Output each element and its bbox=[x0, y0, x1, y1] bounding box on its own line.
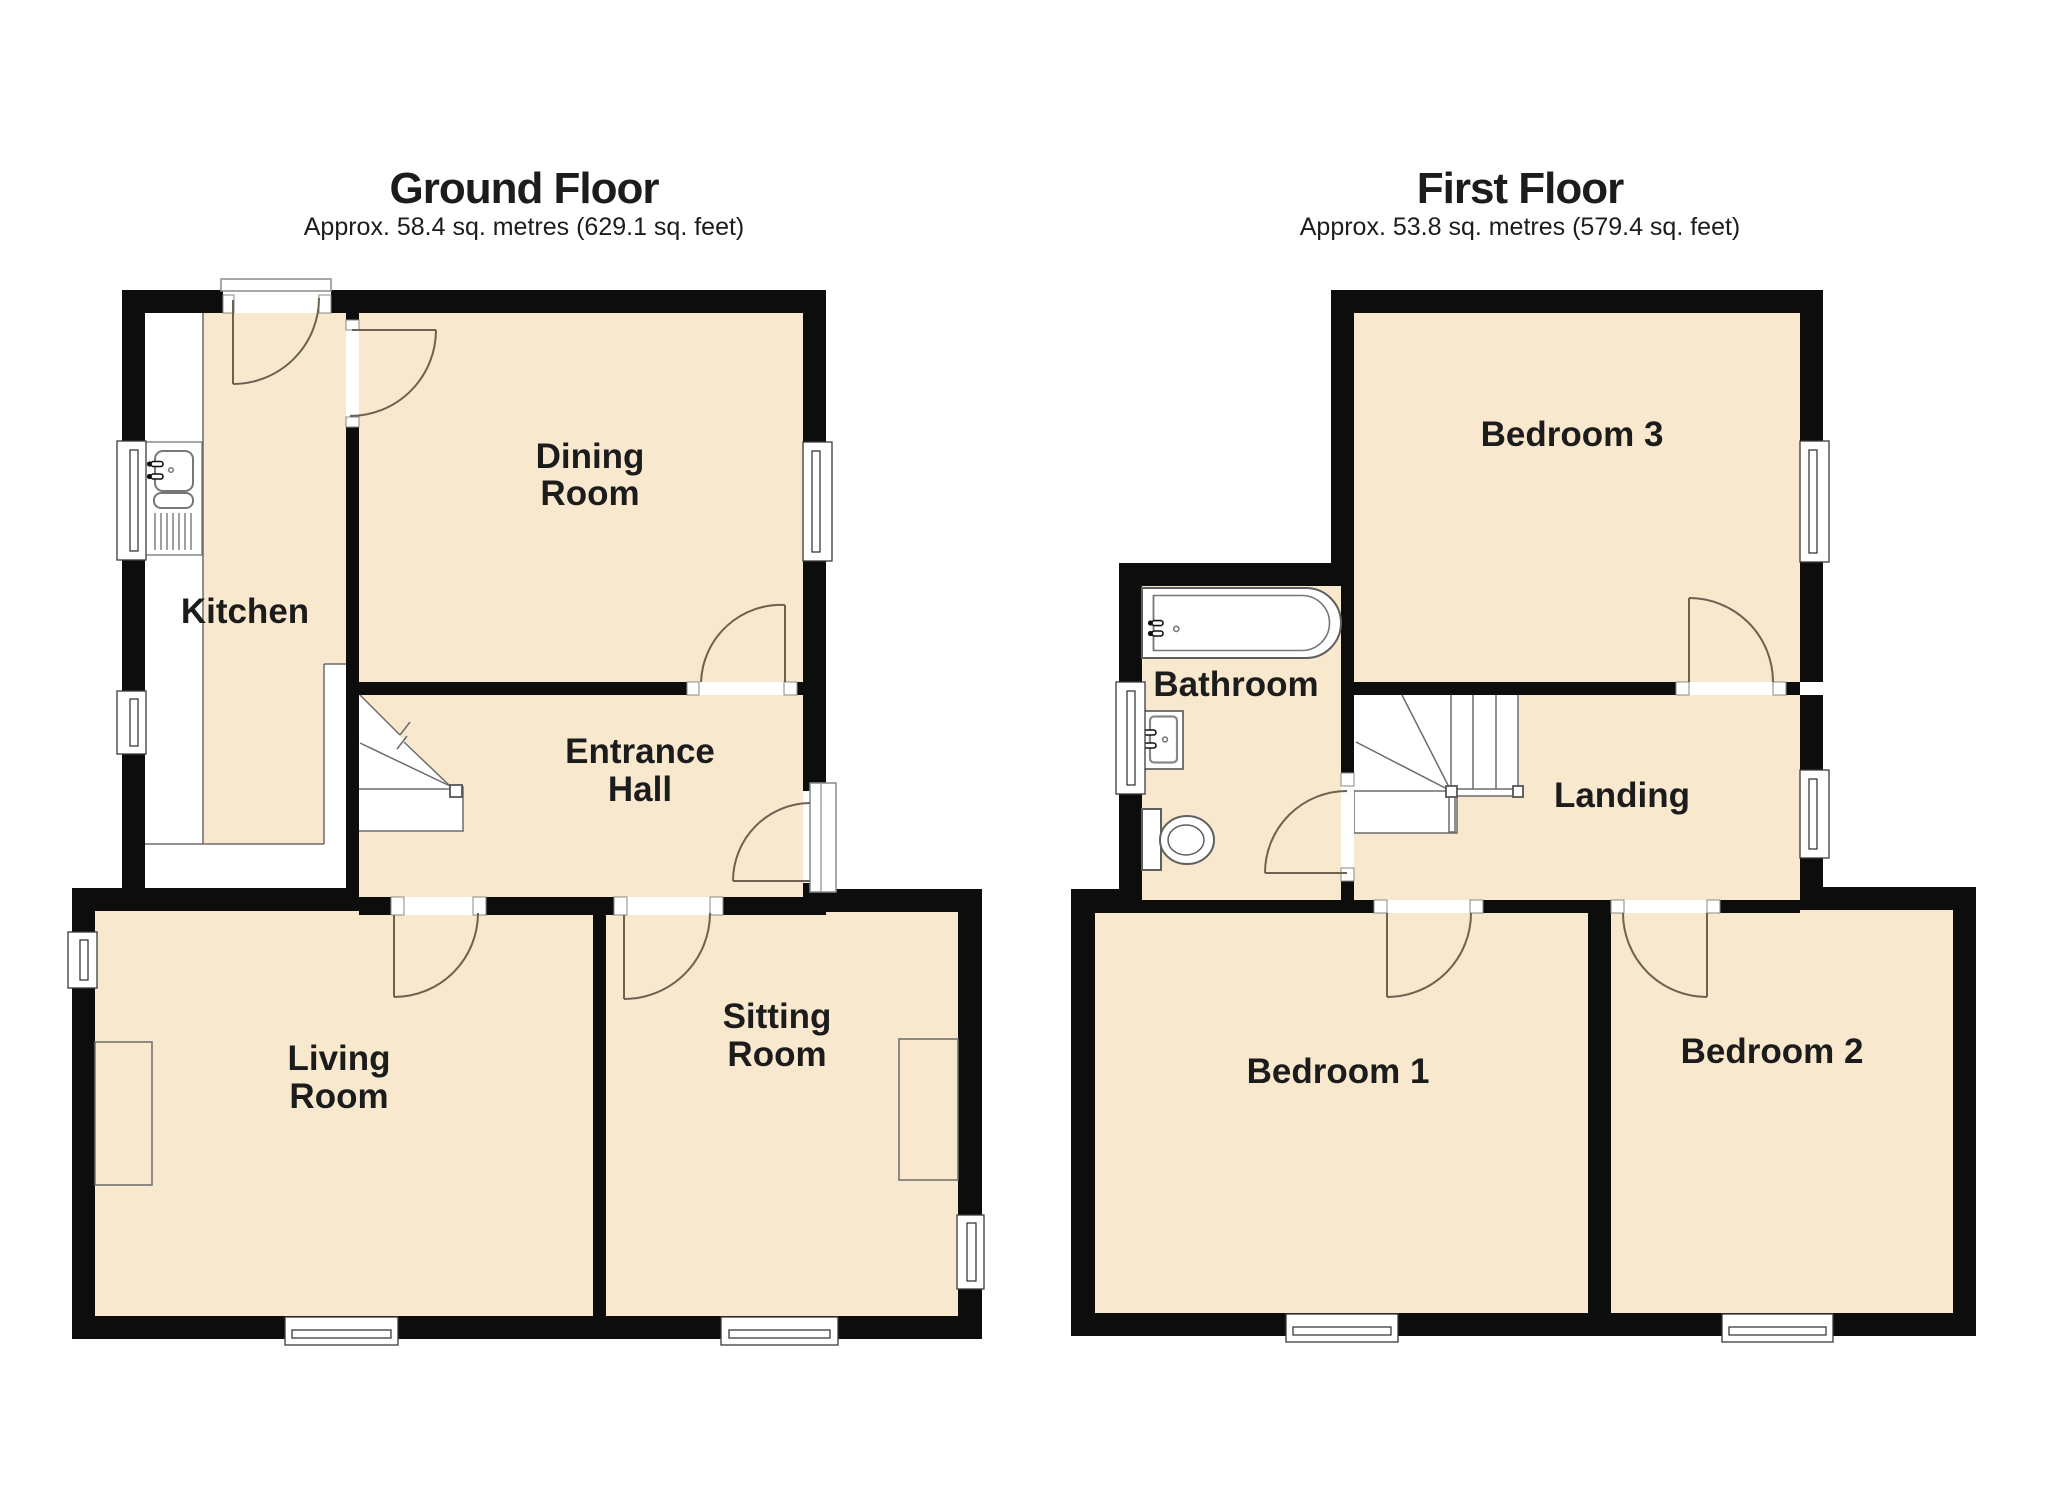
svg-text:Bedroom 2: Bedroom 2 bbox=[1681, 1032, 1864, 1071]
svg-text:Sitting: Sitting bbox=[723, 997, 832, 1036]
svg-text:Approx. 58.4 sq. metres (629.1: Approx. 58.4 sq. metres (629.1 sq. feet) bbox=[304, 213, 745, 241]
svg-text:Room: Room bbox=[727, 1035, 826, 1074]
svg-text:Living: Living bbox=[287, 1039, 390, 1078]
svg-text:Hall: Hall bbox=[608, 770, 672, 809]
svg-text:First Floor: First Floor bbox=[1417, 164, 1624, 213]
svg-text:Landing: Landing bbox=[1554, 776, 1690, 815]
svg-text:Approx. 53.8 sq. metres (579.4: Approx. 53.8 sq. metres (579.4 sq. feet) bbox=[1300, 213, 1741, 241]
svg-text:Bathroom: Bathroom bbox=[1153, 665, 1318, 704]
svg-text:Bedroom 1: Bedroom 1 bbox=[1247, 1052, 1430, 1091]
svg-text:Kitchen: Kitchen bbox=[181, 592, 309, 631]
svg-text:Room: Room bbox=[540, 474, 639, 513]
svg-text:Dining: Dining bbox=[536, 437, 645, 476]
svg-text:Entrance: Entrance bbox=[565, 732, 715, 771]
svg-text:Room: Room bbox=[289, 1077, 388, 1116]
svg-text:Bedroom 3: Bedroom 3 bbox=[1481, 415, 1664, 454]
svg-text:Ground Floor: Ground Floor bbox=[389, 164, 659, 213]
